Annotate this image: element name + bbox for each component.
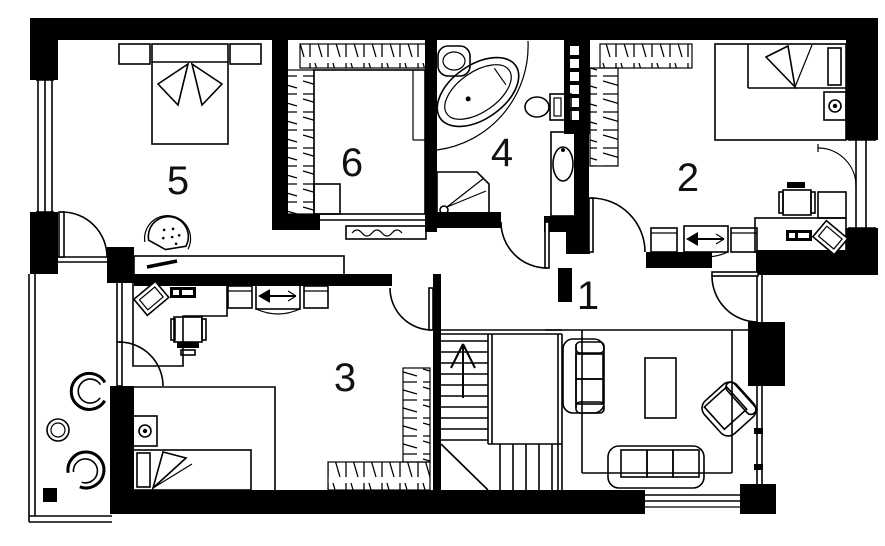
dresser-with-stools: [651, 226, 757, 257]
room-label-5: 5: [167, 159, 189, 203]
nightstand: [133, 416, 157, 446]
door-room6-sill: [320, 220, 426, 239]
sofa-three-seat: [608, 446, 704, 488]
room-label-4: 4: [491, 131, 513, 175]
laptop: [813, 221, 848, 255]
single-bed: [133, 450, 251, 490]
room-label-3: 3: [334, 356, 356, 400]
wardrobe-room2: [590, 44, 692, 166]
room-label-6: 6: [341, 141, 363, 185]
window-living-bottom: [640, 495, 742, 507]
desk-chair: [171, 317, 206, 355]
blanket-fold: [766, 46, 795, 87]
bed-niche-outline: [133, 387, 275, 490]
door-room5: [59, 212, 107, 257]
balcony-chair: [62, 445, 110, 494]
blanket-fold: [153, 452, 186, 488]
door-living-terrace: [712, 272, 758, 322]
double-bed: [152, 44, 228, 144]
armchair: [698, 378, 760, 440]
nightstand: [119, 44, 150, 64]
window-room5-left: [36, 80, 54, 212]
floor-plan-canvas: 1 2 3 4 5 6: [0, 0, 885, 546]
pillow: [192, 64, 222, 105]
column: [43, 488, 57, 502]
living-area: [545, 330, 760, 488]
pillow: [158, 64, 188, 105]
balcony-glazing: [29, 257, 122, 522]
nightstand: [230, 44, 261, 64]
balcony-furniture: [43, 371, 111, 502]
casement-swing-arc: [818, 148, 856, 186]
balcony-chair: [68, 371, 109, 412]
floor-plan-page: 1 2 3 4 5 6: [0, 0, 885, 546]
room-label-1: 1: [577, 274, 599, 318]
shower-screen-arc: [437, 41, 528, 150]
pillow: [137, 453, 150, 487]
door-hall-closet: [390, 288, 433, 330]
window-room2-right: [818, 140, 876, 228]
door-room2: [589, 198, 645, 252]
shelf-item: [147, 261, 177, 267]
balcony-table: [47, 419, 69, 441]
coffee-table: [645, 358, 676, 418]
sofa-two-seat: [563, 339, 604, 413]
laptop: [134, 281, 169, 315]
washbasin: [551, 132, 576, 216]
bathtub: [425, 43, 531, 140]
door-balcony-room3: [117, 342, 163, 386]
desk-chair: [779, 182, 815, 215]
wardrobe-room6: [284, 44, 428, 214]
dresser-with-stools: [228, 283, 328, 314]
wicker-chair: [142, 209, 197, 257]
desk: [755, 192, 848, 255]
nightstand: [824, 92, 846, 120]
door-bathroom: [501, 222, 549, 268]
bathroom-fixtures: [425, 41, 576, 218]
staircase: [441, 330, 562, 490]
shower-cabin: [437, 172, 489, 218]
room-label-2: 2: [677, 156, 699, 200]
wall-shelf: [134, 256, 344, 276]
pillow: [828, 48, 841, 85]
